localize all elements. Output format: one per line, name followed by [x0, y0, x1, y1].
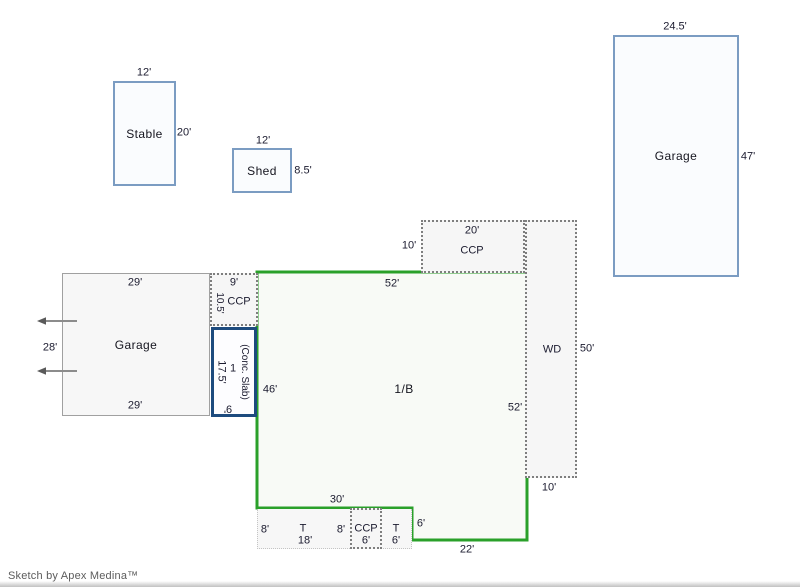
- conc-slab-bottom-dim: 9': [224, 403, 232, 414]
- house-area-label: 1/B: [394, 383, 413, 395]
- porch-t2-label: T: [393, 524, 400, 535]
- stable-shape: Stable: [113, 81, 176, 186]
- porch-left-depth-dim: 8': [261, 525, 269, 536]
- ccp-top-width-dim: 20': [465, 226, 479, 237]
- stable-label: Stable: [126, 127, 162, 141]
- conc-slab-side-dim: 17.5': [216, 360, 227, 384]
- wd-bottom-dim: 10': [542, 483, 556, 494]
- wd-label: WD: [543, 345, 561, 356]
- shed-height-dim: 8.5': [294, 166, 311, 177]
- porch-ccp-dim: 6': [362, 536, 370, 547]
- house-bottom-left-dim: 30': [330, 495, 344, 506]
- house-left-dim: 46': [263, 385, 277, 396]
- conc-slab-story-label: 1: [230, 364, 236, 375]
- ccp-top-label: CCP: [460, 246, 483, 257]
- shed-width-dim: 12': [256, 136, 270, 147]
- house-shape: [253, 268, 531, 544]
- porch-right-depth-dim: 8': [337, 525, 345, 536]
- stable-width-dim: 12': [137, 68, 151, 79]
- garage-ne-width-dim: 24.5': [663, 22, 687, 33]
- garage-door-arrow: [37, 365, 79, 377]
- house-right-dim: 52': [508, 403, 522, 414]
- ccp-upper-left-label: CCP: [227, 297, 250, 308]
- ccp-top-side-dim: 10': [402, 241, 416, 252]
- garage-left-shape: Garage: [62, 273, 210, 416]
- garage-ne-shape: Garage: [613, 35, 739, 277]
- garage-left-bottom-dim: 29': [128, 401, 142, 412]
- garage-left-side-dim: 28': [43, 343, 57, 354]
- porch-t1-label: T: [300, 524, 307, 535]
- stable-height-dim: 20': [177, 128, 191, 139]
- garage-ne-height-dim: 47': [741, 152, 755, 163]
- garage-left-label: Garage: [115, 338, 157, 352]
- garage-door-arrow: [37, 315, 79, 327]
- ccp-upper-left-side-dim: 10.5': [214, 292, 224, 313]
- sketch-canvas: Stable 12' 20' Shed 12' 8.5' Garage 24.5…: [0, 0, 800, 587]
- garage-ne-label: Garage: [655, 149, 697, 163]
- shed-label: Shed: [247, 164, 277, 178]
- porch-t1-dim: 18': [298, 536, 312, 547]
- conc-slab-label: (Conc. Slab): [239, 344, 249, 400]
- wd-side-dim: 50': [580, 344, 594, 355]
- ccp-upper-left-top-dim: 9': [230, 278, 238, 289]
- house-step-dim: 6': [417, 519, 425, 530]
- shed-shape: Shed: [232, 148, 292, 193]
- porch-ccp-label: CCP: [354, 524, 377, 535]
- house-top-dim: 52': [385, 279, 399, 290]
- porch-t2-dim: 6': [392, 536, 400, 547]
- house-bottom-right-dim: 22': [460, 545, 474, 556]
- garage-left-top-dim: 29': [128, 278, 142, 289]
- porch-strip-shape: [257, 509, 412, 549]
- bottom-fade-bar: [0, 581, 800, 587]
